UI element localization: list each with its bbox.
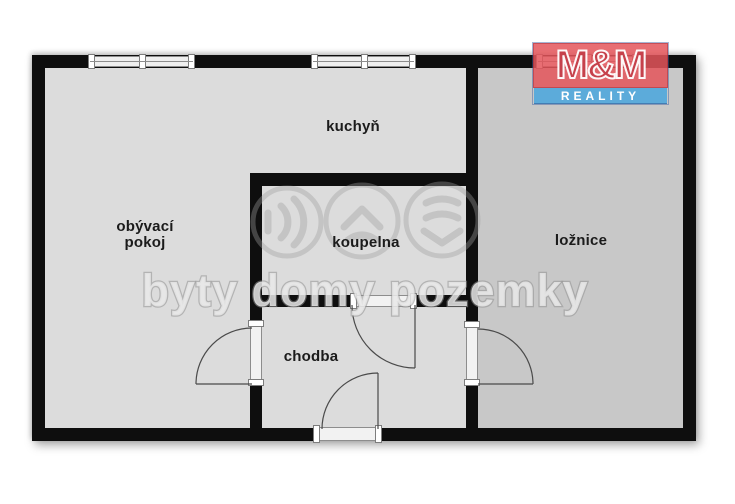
door-frame-bedroom bbox=[466, 323, 478, 384]
wall-left-lower bbox=[250, 384, 262, 428]
room-label-kitchen: kuchyň bbox=[303, 119, 403, 135]
door-jamb bbox=[350, 293, 357, 309]
window-jamb bbox=[88, 54, 95, 69]
door-frame-entrance bbox=[315, 427, 380, 441]
door-jamb bbox=[375, 425, 382, 443]
door-jamb bbox=[248, 379, 264, 386]
window-mullion bbox=[139, 54, 146, 69]
door-jamb bbox=[464, 321, 480, 328]
wall-left-upper bbox=[250, 173, 262, 322]
wall-bathroom-bottom-right bbox=[415, 295, 466, 307]
window-jamb bbox=[188, 54, 195, 69]
wall-bathroom-bottom-left bbox=[262, 295, 352, 307]
wall-bedroom-lower bbox=[466, 384, 478, 428]
logo-mm-text: M&M bbox=[556, 43, 646, 88]
logo-mm-box: M&M bbox=[533, 43, 668, 88]
floorplan-canvas: byty domy pozemky obývací pokoj kuchyň k… bbox=[0, 0, 735, 504]
window-kitchen bbox=[312, 56, 415, 67]
door-jamb bbox=[313, 425, 320, 443]
room-label-living-room: obývací pokoj bbox=[105, 219, 185, 251]
window-living-room bbox=[89, 56, 194, 67]
logo-reality-bar: REALITY bbox=[534, 88, 667, 104]
wall-bedroom-upper bbox=[466, 68, 478, 323]
room-label-bedroom: ložnice bbox=[531, 233, 631, 249]
room-label-bathroom: koupelna bbox=[316, 235, 416, 251]
logo-reality-text: REALITY bbox=[561, 89, 640, 103]
door-jamb bbox=[248, 320, 264, 327]
door-frame-bathroom bbox=[352, 295, 415, 307]
door-jamb bbox=[410, 293, 417, 309]
window-jamb bbox=[409, 54, 416, 69]
window-mullion bbox=[361, 54, 368, 69]
room-label-hallway: chodba bbox=[261, 349, 361, 365]
brand-logo: M&M REALITY bbox=[533, 43, 668, 104]
door-jamb bbox=[464, 379, 480, 386]
window-jamb bbox=[311, 54, 318, 69]
wall-kitchen-bathroom bbox=[250, 173, 466, 186]
